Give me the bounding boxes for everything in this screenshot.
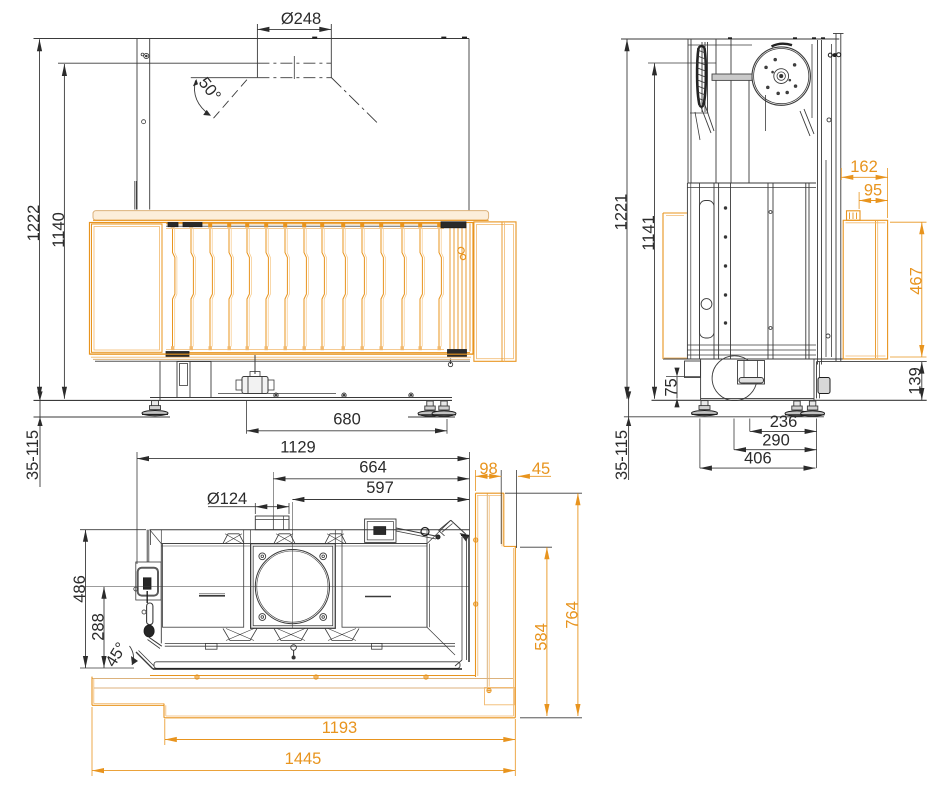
svg-text:664: 664: [359, 459, 387, 477]
svg-text:35-115: 35-115: [613, 430, 631, 480]
svg-text:1445: 1445: [285, 750, 322, 768]
svg-text:45: 45: [532, 460, 550, 478]
svg-text:75: 75: [663, 378, 681, 396]
svg-text:764: 764: [564, 601, 582, 629]
svg-text:486: 486: [71, 575, 89, 603]
svg-text:162: 162: [850, 158, 878, 176]
svg-text:98: 98: [479, 460, 497, 478]
svg-text:1222: 1222: [25, 205, 43, 242]
svg-text:680: 680: [333, 411, 361, 429]
svg-text:Ø124: Ø124: [207, 490, 247, 508]
svg-text:467: 467: [907, 267, 925, 295]
svg-text:1129: 1129: [280, 439, 315, 457]
svg-text:288: 288: [90, 613, 108, 641]
svg-text:597: 597: [366, 479, 394, 497]
svg-text:290: 290: [762, 431, 790, 449]
svg-text:1193: 1193: [322, 719, 357, 737]
svg-text:35-115: 35-115: [24, 430, 42, 480]
svg-text:139: 139: [907, 367, 925, 395]
svg-text:1141: 1141: [640, 215, 658, 250]
svg-text:584: 584: [533, 623, 551, 651]
svg-text:236: 236: [770, 413, 798, 431]
svg-text:95: 95: [864, 182, 882, 200]
svg-text:1140: 1140: [50, 212, 68, 247]
svg-text:1221: 1221: [613, 194, 631, 231]
svg-text:Ø248: Ø248: [281, 10, 321, 28]
svg-text:406: 406: [744, 450, 772, 468]
